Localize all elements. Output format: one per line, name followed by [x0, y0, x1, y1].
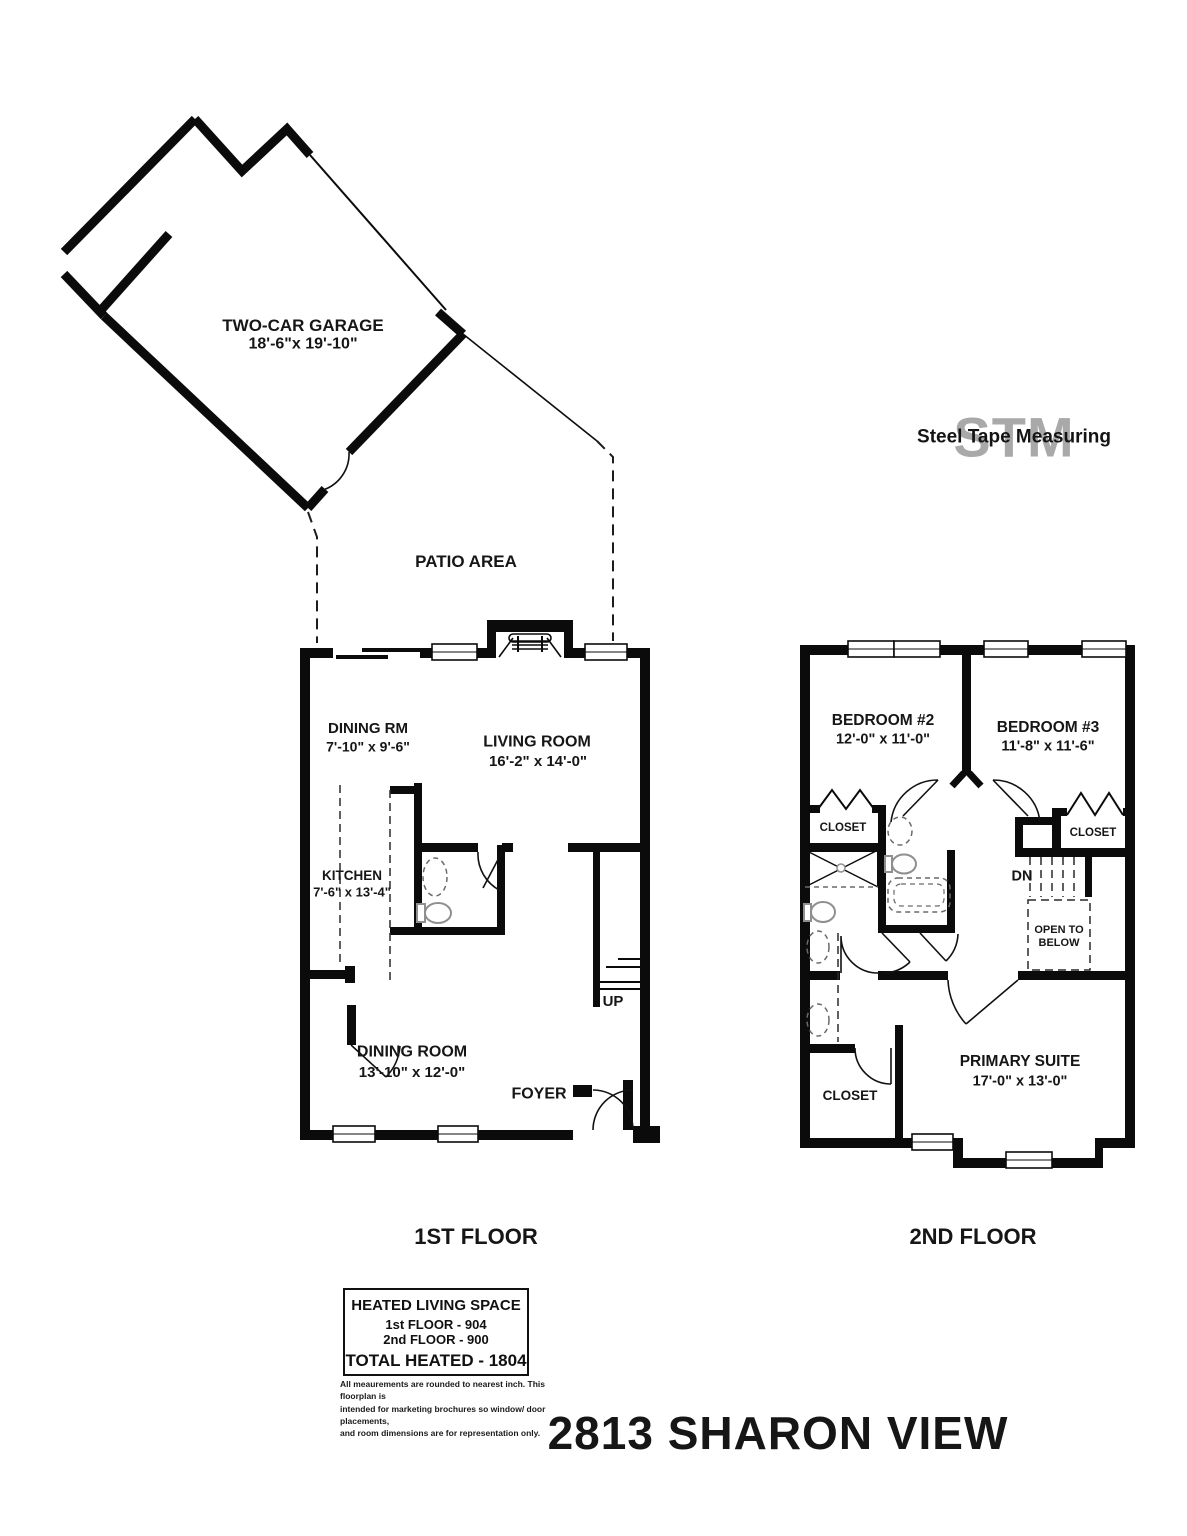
open-to-below-label: OPEN TO BELOW: [1034, 924, 1083, 950]
stairs-down: [1028, 857, 1090, 970]
stm-logo-text: Steel Tape Measuring: [917, 426, 1111, 448]
heated-living-space-box: HEATED LIVING SPACE 1st FLOOR - 904 2nd …: [343, 1288, 529, 1376]
living-room-label: LIVING ROOM: [483, 734, 591, 753]
foyer-label: FOYER: [511, 1086, 566, 1105]
powder-sink: [423, 858, 447, 896]
bifold-closet-right: [1067, 793, 1123, 815]
bedroom2-dims: 12'-0" x 11'-0": [836, 731, 930, 748]
garage-label: TWO-CAR GARAGE: [222, 316, 383, 336]
bedroom3-dims: 11'-8" x 11'-6": [1001, 738, 1094, 755]
sink-2: [807, 1004, 829, 1036]
bedroom3-label: BEDROOM #3: [997, 719, 1100, 737]
kitchen-dims: 7'-6" x 13'-4": [313, 884, 391, 899]
summary-floor2: 2nd FLOOR - 900: [345, 1332, 527, 1347]
toilet-hall-bath: [804, 902, 835, 922]
stairs-down-label: DN: [1012, 868, 1033, 885]
living-room-dims: 16'-2" x 14'-0": [489, 753, 587, 771]
stairs-up-label: UP: [603, 993, 624, 1011]
summary-floor1: 1st FLOOR - 904: [345, 1317, 527, 1332]
fireplace: [487, 620, 573, 658]
powder-toilet: [417, 903, 451, 923]
floorplan-drawing: [0, 0, 1187, 1536]
primary-suite-label: PRIMARY SUITE: [960, 1053, 1081, 1071]
first-floor-caption: 1ST FLOOR: [414, 1224, 537, 1250]
dining-room-label: DINING ROOM: [357, 1044, 467, 1063]
disclaimer: All meaurements are rounded to nearest i…: [340, 1378, 560, 1440]
tub: [888, 878, 950, 912]
summary-title: HEATED LIVING SPACE: [345, 1297, 527, 1314]
closet-primary-label: CLOSET: [823, 1088, 878, 1104]
dining-room-dims: 13'-10" x 12'-0": [359, 1064, 465, 1082]
floorplan-page: TWO-CAR GARAGE 18'-6"x 19'-10" PATIO ARE…: [0, 0, 1187, 1536]
garage-entry-door-arc: [323, 452, 349, 490]
sliding-door: [336, 648, 420, 659]
patio-label: PATIO AREA: [415, 552, 517, 572]
garage-outline: [64, 119, 463, 508]
second-floor-caption: 2ND FLOOR: [909, 1224, 1036, 1250]
address-title: 2813 SHARON VIEW: [548, 1406, 1009, 1460]
bedroom2-label: BEDROOM #2: [832, 712, 935, 730]
sink-1: [807, 931, 829, 963]
toilet-center-bath: [885, 855, 916, 874]
primary-suite-dims: 17'-0" x 13'-0": [973, 1073, 1068, 1090]
bifold-closet-left: [818, 790, 874, 809]
summary-total: TOTAL HEATED - 1804: [345, 1351, 527, 1371]
closet-left-label: CLOSET: [820, 822, 867, 836]
stairs-up: [600, 959, 640, 989]
shower: [805, 850, 878, 887]
patio-boundary: [308, 334, 613, 643]
dining-rm-dims: 7'-10" x 9'-6": [326, 739, 410, 756]
stm-logo: STM Steel Tape Measuring: [917, 405, 1111, 470]
garage-door-line: [310, 155, 446, 310]
kitchen-label: KITCHEN: [322, 868, 382, 884]
closet-right-label: CLOSET: [1070, 827, 1117, 841]
garage-dims: 18'-6"x 19'-10": [248, 336, 357, 355]
dining-rm-label: DINING RM: [328, 720, 408, 738]
